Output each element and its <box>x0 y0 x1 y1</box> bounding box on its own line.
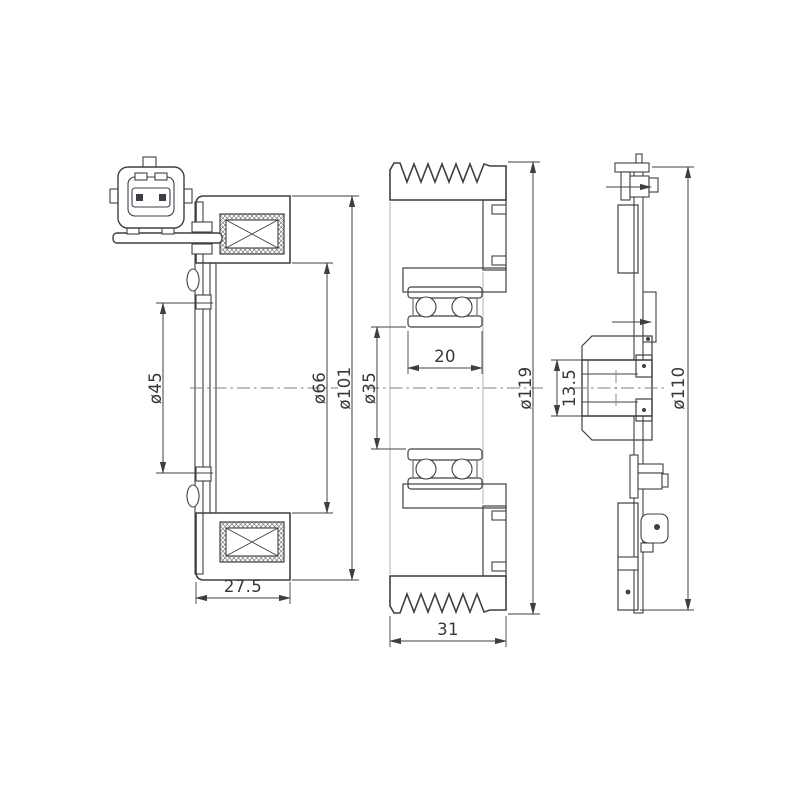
flange-rivet-top <box>187 269 199 291</box>
terminal-clamp-bottom <box>192 244 212 254</box>
bearing-top <box>408 287 482 327</box>
dim-label-coil-inner-diameter: ø66 <box>310 372 329 404</box>
dim-label-coil-bore: ø45 <box>146 372 165 404</box>
dim-coil-depth: 27.5 <box>196 577 290 604</box>
pulley-section-view: 20 ø35 ø119 31 <box>360 162 543 647</box>
bracket-bar-top <box>621 172 630 200</box>
rivet-center-mark <box>626 590 631 595</box>
rivet-center-mark <box>646 337 650 341</box>
clutch-assembly-drawing: ø45 ø66 ø101 27.5 <box>0 0 800 800</box>
bearing-inner-race-top <box>408 316 482 327</box>
coil-housing-bottom <box>196 513 290 580</box>
terminal-clamp-top <box>192 222 212 232</box>
bracket-step-top <box>649 178 658 192</box>
hub-plate-pin <box>636 154 642 163</box>
dim-bearing-width: 20 <box>408 331 482 374</box>
dim-label-coil-outer-diameter: ø101 <box>335 366 354 409</box>
bearing-bottom <box>408 449 482 489</box>
flange-rivet-bottom <box>187 485 199 507</box>
bracket-bar-bottom <box>630 455 638 498</box>
dim-label-pulley-bore: ø35 <box>360 372 379 404</box>
flange-stop-bottom <box>196 467 211 481</box>
bracket-step-bottom <box>662 474 668 487</box>
connector-pin-2 <box>159 194 166 201</box>
dim-label-hub-depth: 13.5 <box>560 369 579 407</box>
bearing-ball <box>452 297 472 317</box>
dim-label-pulley-depth: 31 <box>437 620 459 639</box>
rivet-head <box>654 524 660 530</box>
damper-bracket-top <box>606 163 658 200</box>
rivet-bottom <box>638 473 662 489</box>
disc-balance-slot <box>618 557 638 570</box>
connector-2pin <box>110 157 192 234</box>
web-notch-4 <box>492 562 506 571</box>
hub-plate-section-view: 13.5 ø110 <box>551 154 694 613</box>
web-notch-2 <box>492 256 506 265</box>
connector-pin-1 <box>136 194 143 201</box>
dim-label-bearing-width: 20 <box>434 347 456 366</box>
bearing-ball <box>416 297 436 317</box>
dim-pulley-depth: 31 <box>390 616 506 647</box>
dim-label-plate-outer-diameter: ø110 <box>669 366 688 409</box>
coil-section-view: ø45 ø66 ø101 27.5 <box>110 157 359 604</box>
connector-key-right <box>155 173 167 180</box>
rivet-center-mark <box>642 408 646 412</box>
web-notch-3 <box>492 511 506 520</box>
hub-stop-bar <box>643 292 656 342</box>
web-notch-1 <box>492 205 506 214</box>
technical-drawing-page: ø45 ø66 ø101 27.5 <box>0 0 800 800</box>
rivet-center-mark <box>642 364 646 368</box>
damper-foot <box>641 543 653 552</box>
bracket-cap-bottom <box>638 464 663 473</box>
bearing-inner-race-bottom <box>408 449 482 460</box>
pulley-rim-bottom-grooves <box>390 576 506 613</box>
dim-label-coil-depth: 27.5 <box>224 577 262 596</box>
pulley-flange-bottom <box>403 484 506 508</box>
bearing-ball <box>452 459 472 479</box>
bracket-cap-top <box>615 163 649 172</box>
dim-coil-inner-diameter: ø66 <box>292 263 333 513</box>
dim-label-pulley-outer-diameter: ø119 <box>516 366 535 409</box>
bearing-ball <box>416 459 436 479</box>
pulley-flange-top <box>403 268 506 292</box>
pulley-rim-top-grooves <box>390 163 506 200</box>
flange-stop-top <box>196 295 211 309</box>
connector-key-left <box>135 173 147 180</box>
